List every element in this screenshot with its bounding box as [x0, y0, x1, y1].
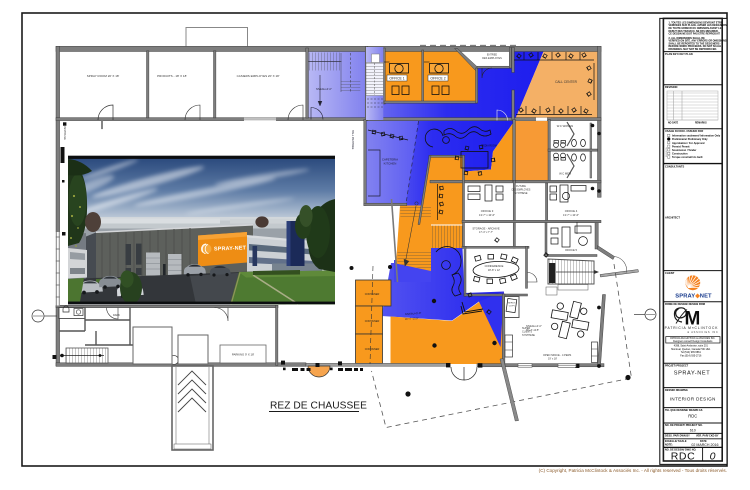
svg-text:CONTAINER: CONTAINER [365, 320, 380, 323]
svg-text:DRAWINGS. MAY NOT BE REPRODUCE: DRAWINGS. MAY NOT BE REPRODUCED. [669, 48, 718, 51]
svg-text:ARCHITECT: ARCHITECT [665, 216, 680, 220]
svg-text:Approbation / For Approval: Approbation / For Approval [672, 142, 705, 145]
svg-text:DES EMPLOYES: DES EMPLOYES [482, 57, 502, 60]
svg-text:REZ DE CHAUSSEE: REZ DE CHAUSSEE [270, 401, 367, 412]
svg-text:NO DATE: NO DATE [668, 122, 679, 125]
svg-text:PRODUITS - 18' X 18': PRODUITS - 18' X 18' [157, 74, 187, 78]
svg-text:VESTIBULE: VESTIBULE [63, 126, 66, 140]
svg-text:W.C MEN: W.C MEN [559, 172, 571, 176]
svg-text:DARK: DARK [113, 314, 120, 317]
svg-text:RDC: RDC [671, 450, 696, 462]
svg-text:CLIENT: CLIENT [665, 271, 675, 275]
svg-text:Information seulement/ Informa: Information seulement/ Information Only [672, 135, 721, 138]
svg-text:VER. PAR/ CKD BY: VER. PAR/ CKD BY [696, 435, 719, 438]
svg-text:MEDIA ROOM: MEDIA ROOM [481, 145, 497, 148]
svg-text:Soumission / Tender: Soumission / Tender [672, 149, 696, 152]
svg-text:18'-8" x 12': 18'-8" x 12' [488, 269, 501, 272]
svg-text:610: 610 [690, 428, 696, 432]
svg-text:02 MARCH 2016: 02 MARCH 2016 [691, 443, 718, 447]
svg-text:CONFERENCE: CONFERENCE [485, 264, 504, 268]
svg-text:SYNTHESE: SYNTHESE [515, 192, 528, 195]
svg-text:INTERIOR DESIGN: INTERIOR DESIGN [670, 396, 716, 401]
svg-text:SPRAY-NET: SPRAY-NET [674, 370, 710, 376]
svg-text:13'-7" x 10'-6": 13'-7" x 10'-6" [479, 213, 495, 217]
svg-text:PLAN KEY/ KEY PLAN: PLAN KEY/ KEY PLAN [665, 52, 693, 56]
svg-text:NOTE:: NOTE: [665, 444, 673, 447]
svg-text:13'-7" x 10'-6": 13'-7" x 10'-6" [563, 213, 579, 217]
svg-text:Tel que construit/ As built: Tel que construit/ As built [672, 156, 703, 159]
svg-text:0: 0 [710, 450, 716, 462]
svg-text:OFFICE 3: OFFICE 3 [481, 209, 494, 213]
svg-text:TEL QUE DESSINE/ DRAWN AS: TEL QUE DESSINE/ DRAWN AS [665, 409, 703, 412]
svg-text:NIVEAU+0'-0": NIVEAU+0'-0" [316, 88, 332, 91]
svg-text:REVISION: REVISION [665, 85, 678, 89]
svg-text:OFFICE 4: OFFICE 4 [565, 209, 578, 213]
svg-text:SPRAY ROOM 20' X 18': SPRAY ROOM 20' X 18' [87, 74, 120, 78]
svg-text:KITCHEN: KITCHEN [384, 162, 397, 166]
svg-text:ECHELLE/ SCALE: ECHELLE/ SCALE [665, 440, 687, 443]
svg-text:DESSIN/ DRAWING: DESSIN/ DRAWING [665, 389, 688, 392]
svg-text:HALL D'ENTREE: HALL D'ENTREE [351, 130, 354, 150]
svg-text:REMARKS: REMARKS [695, 122, 707, 125]
svg-text:PARKING 9' X 18': PARKING 9' X 18' [232, 353, 255, 357]
svg-text:EMISSION: EMISSION [666, 147, 668, 157]
svg-text:Permis/ Permit: Permis/ Permit [672, 145, 690, 148]
svg-text:SPRAY-NET: SPRAY-NET [214, 245, 247, 252]
svg-text:RDC: RDC [688, 414, 697, 419]
svg-text:CASIERS EMPLOYES 20' X 18': CASIERS EMPLOYES 20' X 18' [237, 74, 280, 78]
svg-text:H=+7'-10.5": H=+7'-10.5" [526, 329, 539, 332]
svg-text:CONSULTANTS: CONSULTANTS [665, 164, 684, 168]
svg-text:CE DESSIN NE DOIT PAS ETRE REP: CE DESSIN NE DOIT PAS ETRE REPRODUIT [669, 33, 721, 36]
svg-text:OPEN SPACE - 4 PERS: OPEN SPACE - 4 PERS [543, 353, 571, 357]
svg-text:NO. DE PROJET/ PROJECT NO.: NO. DE PROJET/ PROJECT NO. [665, 424, 703, 427]
svg-text:W.C WOMEN: W.C WOMEN [557, 124, 573, 128]
svg-text:XEROX: XEROX [508, 302, 516, 304]
svg-text:17'-4" x 7'-7": 17'-4" x 7'-7" [479, 231, 493, 234]
svg-text:OFFICE 5: OFFICE 5 [565, 248, 578, 252]
svg-text:Construction: Construction [672, 153, 688, 156]
svg-text:DESS. PAR/ DWN BY: DESS. PAR/ DWN BY [665, 435, 690, 438]
svg-text:Preliminaire/ Preliminary Only: Preliminaire/ Preliminary Only [672, 138, 708, 141]
svg-text:OFFICE 1: OFFICE 1 [389, 77, 404, 81]
svg-text:SYNTHESE: SYNTHESE [522, 334, 535, 337]
svg-text:PROJET/ PROJECT: PROJET/ PROJECT [665, 364, 689, 367]
svg-text:COPY: COPY [509, 305, 516, 307]
svg-text:OFFICE 2: OFFICE 2 [430, 77, 445, 81]
svg-text:CALL CENTER: CALL CENTER [555, 80, 578, 84]
svg-text:CONTAINER: CONTAINER [365, 348, 380, 351]
svg-text:(C) Copyright, Patricia McClin: (C) Copyright, Patricia McClintock & Ass… [539, 468, 727, 473]
svg-text:PATRICIA McCLINTOCK & ASSOCIES: PATRICIA McCLINTOCK & ASSOCIES INC. [670, 337, 715, 340]
svg-text:PATRICIA M«CLINTOCK: PATRICIA M«CLINTOCK [665, 326, 719, 330]
svg-text:NIVEAU+0'-0": NIVEAU+0'-0" [526, 325, 542, 328]
svg-text:& ASSOCIES INC: & ASSOCIES INC [687, 331, 718, 334]
svg-text:19' x 18': 19' x 18' [548, 358, 558, 361]
svg-text:USAGE DU DOC./ ISSUED FOR: USAGE DU DOC./ ISSUED FOR [665, 129, 703, 133]
svg-text:Designers conseil/ Design Cons: Designers conseil/ Design Consultants [673, 340, 713, 343]
svg-text:STORAGE - ARCHIVE: STORAGE - ARCHIVE [472, 227, 499, 231]
svg-text:Fax:(514) 935-2716: Fax:(514) 935-2716 [680, 355, 702, 358]
svg-text:SPRAY◆NET: SPRAY◆NET [675, 292, 712, 299]
svg-text:FIRME DE DESIGN/ DESIGN FIRM: FIRME DE DESIGN/ DESIGN FIRM [665, 303, 705, 306]
